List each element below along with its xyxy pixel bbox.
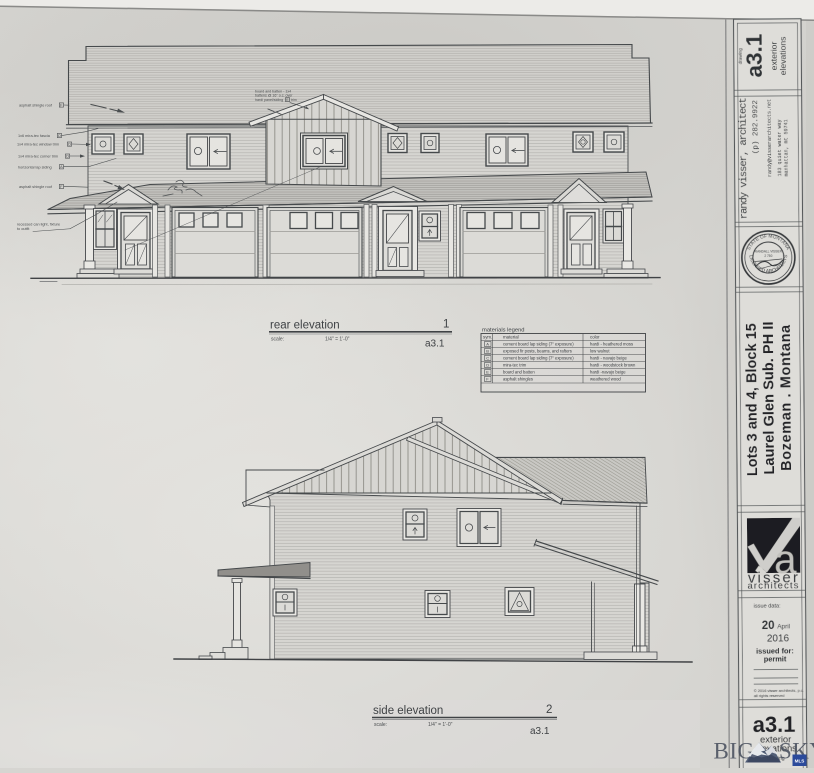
svg-text:1/4" = 1'-0": 1/4" = 1'-0" (428, 722, 453, 728)
svg-text:randy visser, architect: randy visser, architect (738, 97, 751, 219)
svg-text:1/4" = 1'-0": 1/4" = 1'-0" (325, 337, 350, 343)
svg-text:D: D (68, 143, 71, 147)
svg-text:exposed fir posts, beams, and: exposed fir posts, beams, and rafters (503, 349, 572, 354)
svg-text:architects: architects (747, 580, 798, 591)
svg-text:a3.1: a3.1 (425, 339, 445, 350)
svg-text:issue data:: issue data: (754, 603, 782, 609)
svg-text:asphalt shingles: asphalt shingles (503, 377, 533, 382)
svg-text:color: color (590, 335, 600, 340)
svg-text:permit: permit (764, 654, 787, 663)
svg-text:1x6 mira-tec fascia: 1x6 mira-tec fascia (18, 134, 51, 138)
svg-text:to outfit: to outfit (17, 227, 30, 231)
svg-text:board and batten: board and batten (503, 370, 535, 375)
svg-text:Laurel Glen Sub. PH II: Laurel Glen Sub. PH II (761, 321, 778, 474)
svg-text:A: A (486, 342, 489, 347)
svg-text:1x4 mira-tec corner trim: 1x4 mira-tec corner trim (18, 155, 58, 159)
svg-text:Bozeman . Montana: Bozeman . Montana (778, 324, 795, 471)
svg-text:weathered wood: weathered wood (590, 377, 621, 382)
svg-text:elevations: elevations (778, 37, 788, 76)
svg-text:hardi -navajo beige: hardi -navajo beige (590, 370, 626, 375)
svg-text:manhattan, mt 59741: manhattan, mt 59741 (783, 119, 789, 176)
svg-text:2016: 2016 (767, 633, 790, 644)
svg-text:183 quiet water way: 183 quiet water way (777, 119, 783, 176)
svg-text:horizontal lap siding: horizontal lap siding (18, 165, 52, 169)
svg-text:all rights reserved: all rights reserved (754, 693, 785, 698)
svg-text:side elevation: side elevation (373, 705, 443, 717)
svg-text:D: D (66, 155, 69, 159)
svg-text:scale:: scale: (271, 337, 284, 343)
svg-text:a3.1: a3.1 (742, 34, 767, 78)
svg-text:low walnut: low walnut (590, 349, 610, 354)
svg-text:Lots 3 and 4, Block 15: Lots 3 and 4, Block 15 (744, 323, 761, 476)
svg-text:cement board lap siding (7" ex: cement board lap siding (7" exposure) (503, 342, 574, 347)
svg-text:E: E (486, 370, 489, 375)
svg-text:MLS: MLS (795, 759, 805, 764)
svg-text:2 750: 2 750 (764, 254, 772, 258)
svg-text:scale:: scale: (374, 722, 387, 728)
svg-text:2: 2 (546, 704, 552, 716)
svg-text:1x4 mira-tec window trim: 1x4 mira-tec window trim (17, 143, 59, 147)
svg-text:randy@visserarchitects.net: randy@visserarchitects.net (767, 99, 774, 177)
svg-text:sym.: sym. (483, 335, 492, 340)
svg-text:materials legend: materials legend (482, 328, 525, 334)
svg-text:April: April (777, 623, 790, 630)
svg-text:asphalt shingle roof: asphalt shingle roof (19, 185, 53, 189)
svg-text:trim: trim (291, 98, 297, 102)
svg-text:C: C (486, 356, 489, 361)
svg-text:hardi - navajo beige: hardi - navajo beige (590, 356, 627, 361)
svg-text:mira-tec trim: mira-tec trim (503, 363, 527, 368)
svg-text:material: material (503, 335, 519, 340)
svg-text:D: D (58, 134, 61, 138)
svg-text:recessed can light, fixture: recessed can light, fixture (17, 223, 60, 227)
svg-text:A: A (60, 165, 63, 169)
svg-text:B: B (486, 349, 489, 354)
svg-text:D: D (486, 363, 489, 368)
svg-text:rear elevation: rear elevation (270, 320, 340, 332)
svg-text:hardi - heathered moss: hardi - heathered moss (590, 342, 633, 347)
svg-text:a3.1: a3.1 (530, 726, 550, 737)
svg-text:hardi - woodstock brown: hardi - woodstock brown (590, 363, 636, 368)
svg-text:20: 20 (762, 620, 775, 632)
svg-text:asphalt shingle roof: asphalt shingle roof (19, 104, 53, 108)
svg-text:RANDALL VISSER: RANDALL VISSER (755, 249, 783, 253)
svg-text:(p) 282.9922: (p) 282.9922 (752, 100, 760, 154)
svg-text:cement board lap siding (7" ex: cement board lap siding (7" exposure) (503, 356, 574, 361)
svg-text:hardi panel/siding: hardi panel/siding (255, 98, 283, 102)
svg-text:1: 1 (443, 319, 449, 331)
